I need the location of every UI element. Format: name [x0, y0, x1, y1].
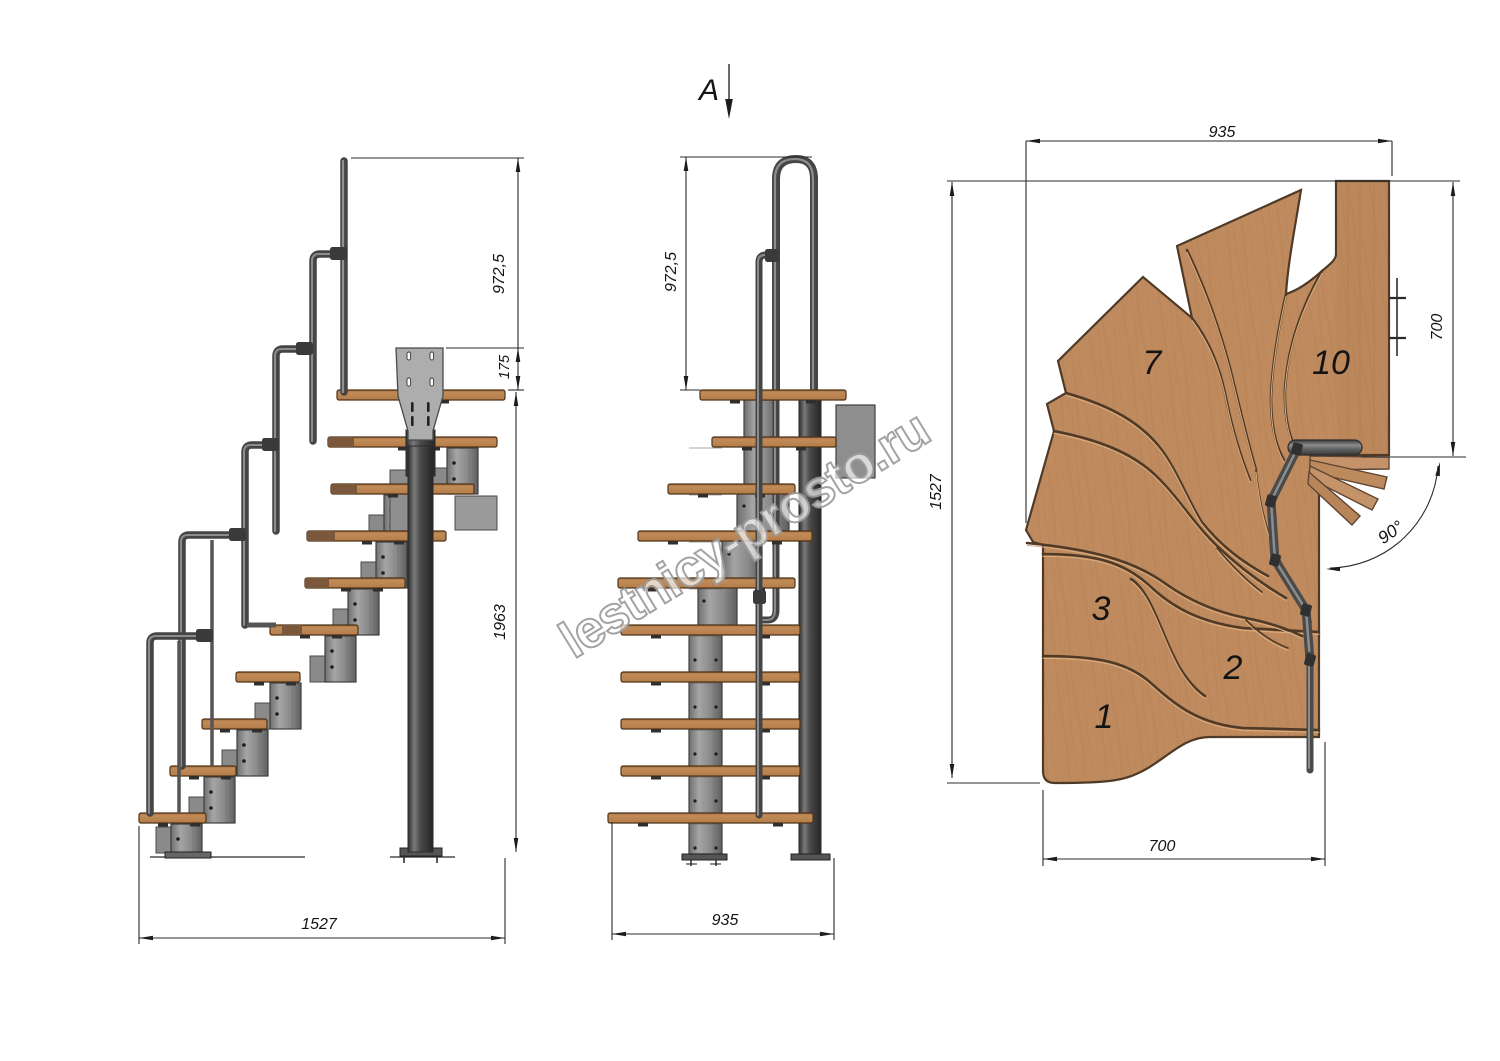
svg-text:935: 935 [712, 912, 739, 929]
svg-text:10: 10 [1312, 344, 1350, 382]
svg-text:1527: 1527 [928, 473, 945, 510]
svg-text:700: 700 [1149, 838, 1176, 855]
svg-text:935: 935 [1209, 124, 1236, 141]
svg-text:1527: 1527 [301, 916, 338, 933]
svg-text:2: 2 [1223, 649, 1243, 687]
svg-text:175: 175 [497, 354, 513, 379]
svg-text:700: 700 [1429, 314, 1446, 341]
svg-text:972,5: 972,5 [491, 254, 508, 294]
svg-text:3: 3 [1092, 590, 1111, 628]
svg-text:A: A [697, 74, 719, 107]
svg-text:972,5: 972,5 [663, 252, 680, 292]
svg-text:7: 7 [1143, 344, 1163, 382]
svg-text:1963: 1963 [492, 604, 509, 640]
svg-text:1: 1 [1095, 698, 1114, 736]
